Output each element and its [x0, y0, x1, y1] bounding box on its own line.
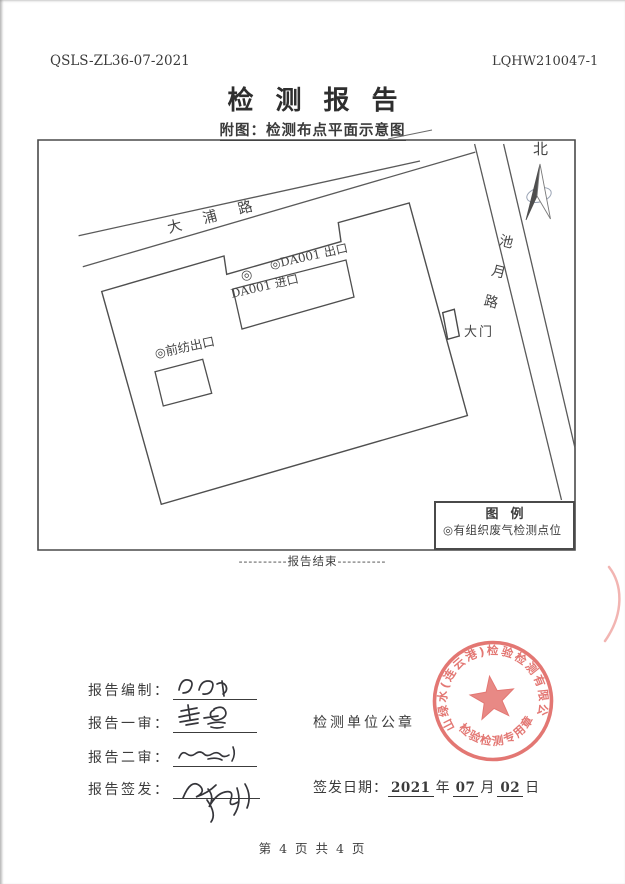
signoff-row-issuer: 报告签发：	[88, 779, 260, 801]
report-end-marker: ----------报告结束----------	[0, 553, 625, 569]
year-unit: 年	[436, 780, 451, 796]
qianfang-building	[155, 359, 212, 406]
scanned-report-page: QSLS-ZL36-07-2021 LQHW210047-1 检测报告 附图：检…	[0, 0, 625, 884]
legend-box: 图例 ◎有组织废气检测点位	[434, 501, 575, 550]
legend-title: 图例	[436, 508, 573, 521]
company-seal-stamp: 青山绿水(连云港)检验检测有限公司 检验检测专用章	[428, 636, 558, 766]
page-title: 检测报告	[227, 86, 419, 116]
seal-caption: 检测单位公章	[313, 712, 415, 732]
signature-line	[173, 752, 257, 767]
report-number: LQHW210047-1	[492, 54, 598, 69]
dapu-road-line-overshoot	[388, 130, 432, 139]
signoff-row-preparer: 报告编制：	[88, 680, 257, 702]
day-unit: 日	[525, 780, 540, 796]
monitoring-point-marker: ◎	[241, 269, 252, 282]
page-title-row: 检测报告	[0, 80, 625, 117]
compass-icon	[525, 164, 553, 220]
handwritten-signature-first-review	[175, 703, 255, 733]
site-plan-drawing	[30, 120, 590, 560]
gate-label: 大门	[464, 326, 494, 339]
north-label: 北	[533, 142, 548, 157]
signature-line	[173, 685, 257, 700]
legend-item-organized-waste-gas: ◎有组织废气检测点位	[443, 525, 573, 537]
red-ink-mark	[596, 558, 625, 650]
document-code: QSLS-ZL36-07-2021	[50, 53, 190, 69]
handwritten-signature-second-review	[175, 743, 243, 767]
issue-date-label: 签发日期：	[313, 780, 388, 796]
issue-year: 2021	[388, 780, 434, 797]
month-unit: 月	[480, 780, 495, 796]
signoff-row-first-review: 报告一审：	[88, 713, 257, 735]
issue-day: 02	[497, 780, 523, 797]
signature-line	[173, 784, 260, 799]
signoff-label: 报告一审：	[88, 713, 171, 733]
seal-star-icon	[468, 673, 517, 720]
signoff-label: 报告编制：	[88, 680, 171, 700]
page-indicator: 第 4 页 共 4 页	[0, 838, 625, 857]
issue-date-row: 签发日期：2021年07月02日	[313, 777, 542, 797]
signoff-row-second-review: 报告二审：	[88, 747, 257, 769]
signature-line	[173, 718, 257, 733]
issue-month: 07	[453, 780, 479, 797]
handwritten-signature-preparer	[175, 674, 233, 700]
handwritten-signature-issuer	[175, 770, 270, 818]
dapu-road-line-lower	[83, 152, 476, 267]
signoff-label: 报告二审：	[88, 747, 171, 767]
compass-needle-light	[537, 164, 551, 219]
site-plan-diagram: 大浦路 池月路 北 ◎ ◎DA001 出口 DA001 进口 ◎前纺出口 大门 …	[30, 120, 590, 560]
signoff-label: 报告签发：	[88, 779, 171, 799]
